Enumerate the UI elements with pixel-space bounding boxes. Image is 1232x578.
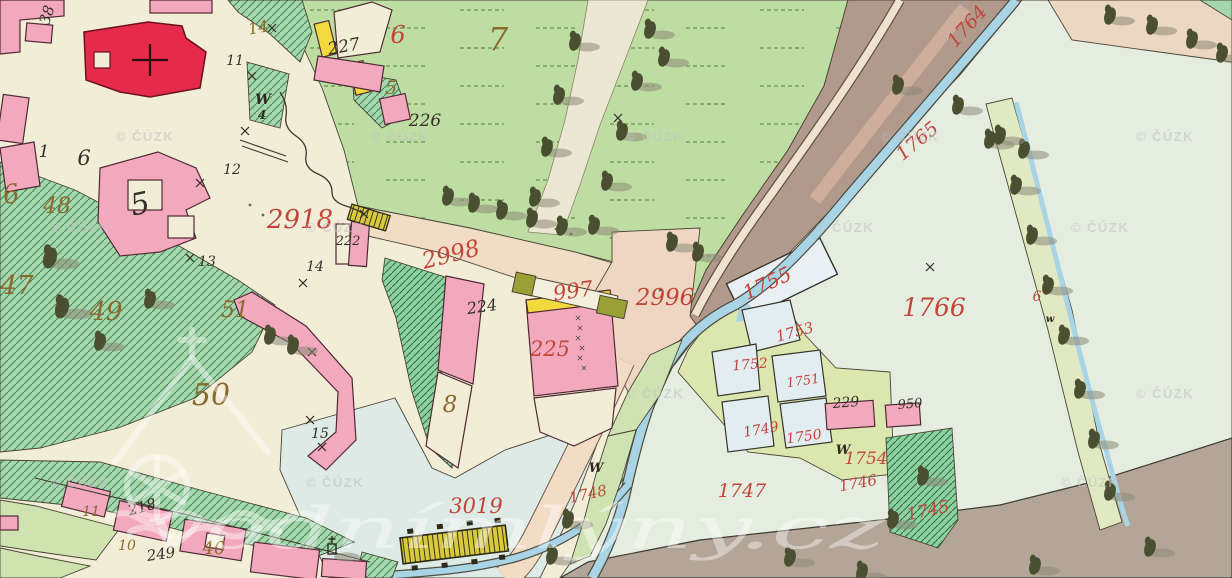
- watermark-cuzk: © ČÚZK: [306, 220, 364, 235]
- watermark-site: vodnímlýny.cz: [145, 496, 887, 562]
- symbol-w-4: w: [1046, 314, 1055, 325]
- watermark-cuzk: © ČÚZK: [1071, 220, 1129, 235]
- topo-label-51: 51: [221, 298, 249, 323]
- house-label-1: 1: [39, 142, 50, 162]
- watermark-cuzk: © ČÚZK: [1061, 475, 1119, 490]
- symbol-class4: 4: [258, 108, 266, 122]
- topo-label-14: 14: [246, 16, 269, 38]
- parcel-label-1754: 1754: [844, 449, 887, 469]
- house-label-6: 6: [77, 146, 90, 170]
- topo-label-10: 10: [118, 538, 136, 554]
- symbol-w-3: W: [836, 443, 852, 458]
- parcel-label-6a: 6: [390, 21, 405, 49]
- house-label-229: 229: [831, 394, 860, 412]
- symbol-w-1: W: [255, 92, 272, 108]
- symbol-w-2: W: [589, 461, 605, 476]
- house-label-222: 222: [335, 234, 361, 249]
- house-label-14: 14: [306, 259, 324, 275]
- topo-label-8: 8: [443, 392, 458, 418]
- topo-label-49: 49: [88, 297, 122, 327]
- parcel-label-1752: 1752: [732, 355, 769, 374]
- watermark-cuzk: © ČÚZK: [1136, 129, 1194, 144]
- watermark-cuzk: © ČÚZK: [626, 386, 684, 401]
- topo-label-11: 11: [82, 504, 100, 520]
- topo-label-7: 7: [488, 20, 509, 58]
- topo-label-48: 48: [42, 194, 71, 219]
- watermark-cuzk: © ČÚZK: [816, 220, 874, 235]
- parcel-label-1766: 1766: [902, 293, 966, 322]
- watermark-cuzk: © ČÚZK: [371, 129, 429, 144]
- house-label-15: 15: [311, 426, 329, 442]
- watermark-cuzk: © ČÚZK: [626, 129, 684, 144]
- watermark-cuzk: © ČÚZK: [881, 129, 939, 144]
- watermark-cuzk: © ČÚZK: [306, 475, 364, 490]
- topo-label-5: 5: [385, 77, 397, 99]
- watermark-cuzk: © ČÚZK: [116, 129, 174, 144]
- house-label-11: 11: [226, 53, 244, 69]
- watermark-cuzk: © ČÚZK: [1136, 386, 1194, 401]
- map-viewport: 6 2918 2998 997 2996 225 3019 1748 1747 …: [0, 0, 1232, 578]
- topo-label-47: 47: [0, 271, 34, 301]
- parcel-label-6b: 6: [1033, 289, 1042, 305]
- house-label-12: 12: [223, 162, 241, 178]
- cadastral-map: 6 2918 2998 997 2996 225 3019 1748 1747 …: [0, 0, 1232, 578]
- parcel-label-225: 225: [529, 337, 570, 361]
- house-label-13: 13: [198, 254, 216, 270]
- watermark-cuzk: © ČÚZK: [51, 475, 109, 490]
- watermark-cuzk: © ČÚZK: [51, 220, 109, 235]
- house-label-950: 950: [897, 396, 923, 413]
- parcel-label-2996: 2996: [635, 285, 695, 311]
- parcel-1745-region: [886, 428, 958, 548]
- house-label-226: 226: [408, 111, 442, 131]
